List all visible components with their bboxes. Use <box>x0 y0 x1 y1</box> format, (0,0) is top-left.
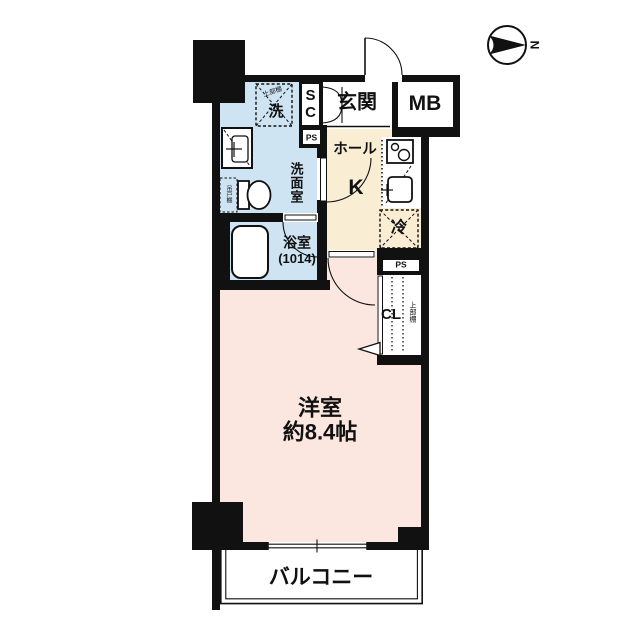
wall-top-right <box>402 75 460 82</box>
bath-door-leaf <box>285 215 316 220</box>
bath-size-label: (1014) <box>278 252 316 266</box>
compass-north-label: N <box>528 41 541 50</box>
wall-stub-bath-door <box>318 213 327 222</box>
closet-label: CL <box>381 307 401 323</box>
floor-plan: 玄関 MB SC PS ホール K 冷 洗 上部棚 洗面室 吊戸棚 浴室 (10… <box>0 0 640 639</box>
wall-under-mb <box>392 127 460 137</box>
hall-label: ホール <box>333 142 377 157</box>
wall-right <box>421 137 429 550</box>
balcony-label: バルコニー <box>269 567 374 589</box>
wall-block-bottom-right <box>398 527 429 550</box>
fridge-label: 冷 <box>391 221 407 238</box>
kitchen-label: K <box>348 177 363 199</box>
pipe-space-side-label: PS <box>395 261 406 270</box>
wall-bath-left <box>212 222 230 280</box>
bathtub <box>232 226 268 278</box>
wall-washroom-bottom <box>212 213 283 222</box>
bath-label: 浴室 <box>283 236 311 251</box>
meter-box-label: MB <box>409 93 442 115</box>
washroom-label: 洗面室 <box>287 162 306 204</box>
wall-mb-left <box>392 82 398 127</box>
wall-bath-right <box>317 222 327 290</box>
north-arrow-icon <box>489 36 526 55</box>
room-door-leaf <box>329 252 374 258</box>
toilet-shelf-label: 吊戸棚 <box>224 185 233 203</box>
entrance-label: 玄関 <box>337 93 377 114</box>
washroom-door-leaf <box>321 158 327 201</box>
shoe-closet-label: SC <box>302 87 319 121</box>
pipe-space-top-label: PS <box>306 133 317 142</box>
washer-label: 洗 <box>268 104 283 120</box>
floor-plan-drawing <box>0 0 640 639</box>
entrance-door-arc <box>365 38 402 75</box>
toilet-bowl <box>248 181 271 209</box>
compass <box>488 26 526 64</box>
room-label: 洋室 <box>298 396 342 419</box>
wall-block-bottom-left <box>192 502 243 550</box>
room-size-label: 約8.4帖 <box>283 420 358 443</box>
wall-room-top <box>212 280 330 290</box>
wall-closet-bottom <box>377 355 429 365</box>
closet-shelf-label: 上部棚 <box>407 302 417 323</box>
